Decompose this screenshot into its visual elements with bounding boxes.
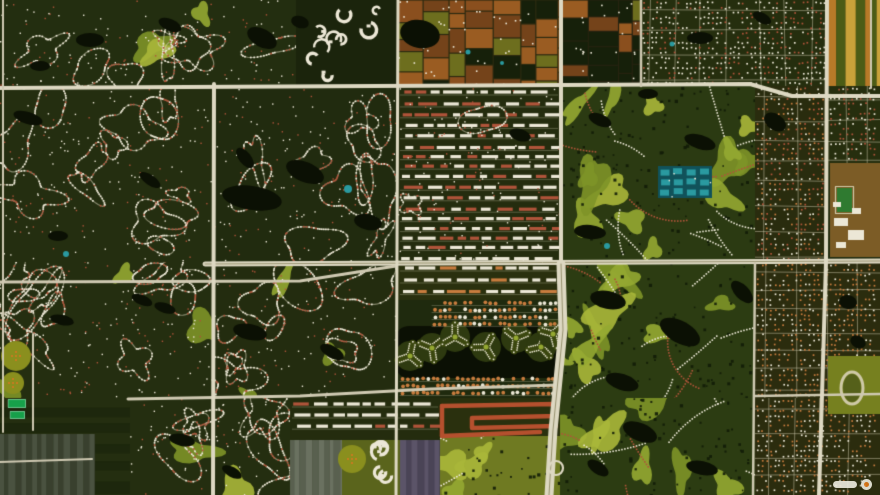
watermark-globe-icon: [861, 479, 872, 490]
aerial-photo: [0, 0, 880, 495]
watermark-globe-core: [864, 482, 869, 487]
provider-watermark: [833, 479, 872, 490]
satellite-photo-canvas: [0, 0, 880, 495]
watermark-logo-icon: [833, 481, 857, 488]
